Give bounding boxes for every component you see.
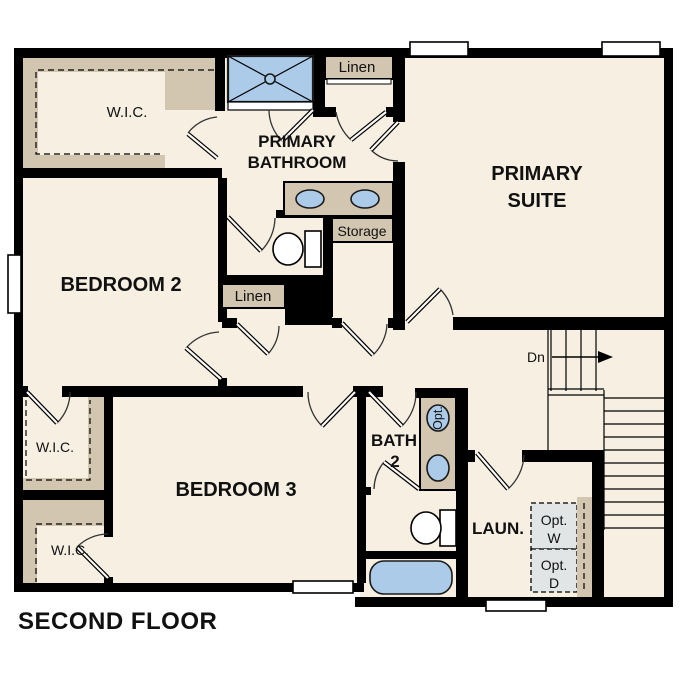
shower [228,56,313,110]
bathtub [370,561,452,594]
window-bedroom3 [293,581,353,593]
wic-primary-label: W.I.C. [107,104,148,121]
bath2-toilet [411,510,456,546]
window-bedroom2 [8,255,21,313]
optional-dryer-label-line1: Opt. [541,557,567,573]
floor-plan-canvas: W.I.C. Linen PRIMARY BATHROOM PRIMARY SU… [0,0,687,687]
floor-title: SECOND FLOOR [18,608,217,635]
bath2-optional-sink-label: Opt. [431,406,445,430]
primary-bathroom-label-line1: PRIMARY [258,132,336,151]
linen-hall-label: Linen [235,288,272,305]
bath2-label-line2: 2 [390,452,399,471]
optional-washer-label-line1: Opt. [541,512,567,528]
laundry-label: LAUN. [472,519,524,538]
wic-left-label: W.I.C. [36,439,74,455]
storage-label: Storage [337,223,386,239]
primary-suite-label-line2: SUITE [508,190,567,212]
bedroom2-label: BEDROOM 2 [60,274,181,296]
window-laundry [486,600,546,611]
floor-plan: W.I.C. Linen PRIMARY BATHROOM PRIMARY SU… [0,0,687,687]
optional-washer-label-line2: W [547,530,561,546]
optional-dryer-label-line2: D [549,575,559,591]
primary-bathroom-label-line2: BATHROOM [248,153,347,172]
bedroom3-label: BEDROOM 3 [175,479,296,501]
primary-toilet [273,231,321,267]
laundry-counter [577,497,592,597]
window-suite-2 [602,42,660,56]
wic-lower-label: W.I.C. [51,542,89,558]
primary-suite-label-line1: PRIMARY [491,163,583,185]
bath2-label-line1: BATH [371,431,417,450]
window-suite-1 [410,42,468,56]
stairs-down-label: Dn [527,349,545,365]
linen-upper-label: Linen [339,59,376,76]
primary-double-vanity [284,182,393,216]
